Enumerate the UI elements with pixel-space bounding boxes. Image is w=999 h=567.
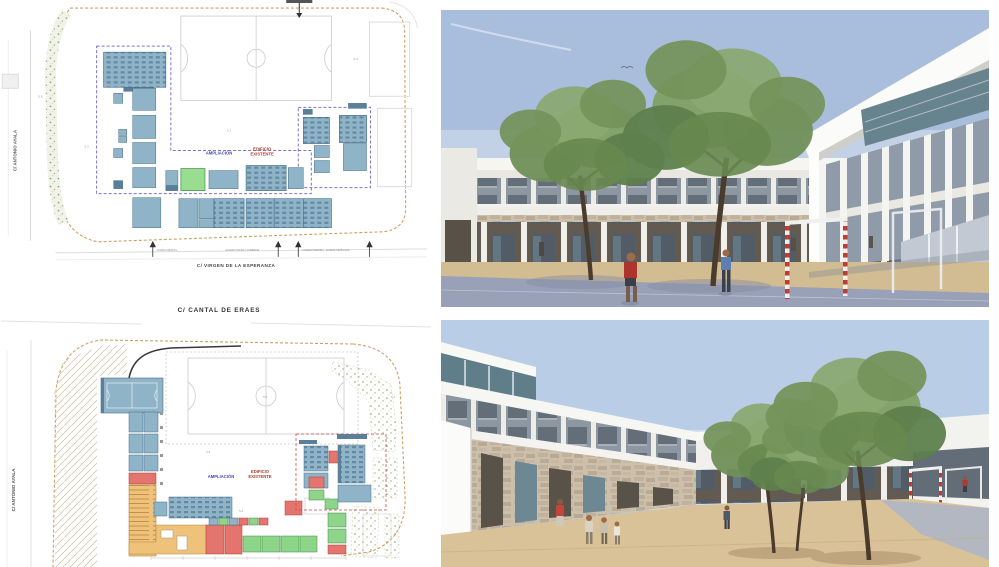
room-red-stair (129, 473, 156, 484)
floor-plan-lower: C/ CANTAL DE ERAES (0, 300, 432, 567)
sports-courts (181, 16, 332, 100)
floor-plan-upper: AMPLIACIÓN EDIFICIO EXISTENTE ACCESO INF… (0, 0, 432, 296)
gym-block (101, 378, 163, 413)
mid-rooms (129, 497, 329, 554)
wing-rooms (129, 412, 158, 471)
hatched-zone (54, 344, 127, 567)
entry-arrow-top (286, 0, 312, 18)
classroom-blocks (104, 52, 367, 228)
svg-text:5.3: 5.3 (85, 144, 90, 148)
figure-red-left (556, 499, 564, 526)
svg-text:6.4: 6.4 (353, 57, 358, 61)
street-name-bottom: C/ VIRGEN DE LA ESPERANZA (197, 263, 276, 268)
street-name-left: C/ ANTONIO AYALA (11, 468, 16, 512)
rendering-lower-svg (441, 320, 989, 567)
rendering-courtyard-upper (441, 10, 989, 307)
svg-text:ACCESO INFANTIL: ACCESO INFANTIL (157, 249, 178, 252)
label-ampliacion: AMPLIACIÓN (208, 474, 235, 479)
label-existente: EXISTENTE (250, 152, 274, 157)
svg-text:6.4: 6.4 (391, 395, 396, 399)
svg-text:5.8: 5.8 (263, 395, 268, 399)
sports-courts (166, 352, 358, 444)
svg-text:5.3: 5.3 (206, 450, 211, 454)
svg-text:ACCESO COCINA Y COMEDOR: ACCESO COCINA Y COMEDOR (225, 249, 259, 252)
label-ampliacion: AMPLIACIÓN (206, 151, 233, 156)
boundary-wall (129, 346, 241, 378)
floor-plan-lower-svg: C/ CANTAL DE ERAES (0, 300, 432, 567)
presentation-board: AMPLIACIÓN EDIFICIO EXISTENTE ACCESO INF… (0, 0, 999, 567)
figure-red-distant (963, 476, 968, 492)
vegetation-band (50, 12, 66, 223)
label-existente: EXISTENTE (248, 474, 271, 479)
svg-text:ACCESO VEHÍCULOS: ACCESO VEHÍCULOS (326, 249, 350, 252)
rendering-courtyard-lower (441, 320, 989, 567)
svg-text:ACCESO PRIMARIA: ACCESO PRIMARIA (302, 249, 324, 252)
street-name-top: C/ CANTAL DE ERAES (178, 307, 261, 314)
svg-text:5.8: 5.8 (38, 94, 43, 98)
room-green (181, 169, 205, 191)
svg-text:5.1: 5.1 (227, 128, 232, 132)
floor-plan-upper-svg: AMPLIACIÓN EDIFICIO EXISTENTE ACCESO INF… (0, 0, 432, 296)
corridor-columns (160, 412, 163, 485)
figure-distant-centre (801, 488, 805, 498)
rendering-upper-svg (441, 10, 989, 307)
dimension-line (151, 556, 346, 560)
svg-text:5.4: 5.4 (239, 509, 244, 513)
street-name-left: C/ ANTONIO AYALA (12, 129, 17, 171)
